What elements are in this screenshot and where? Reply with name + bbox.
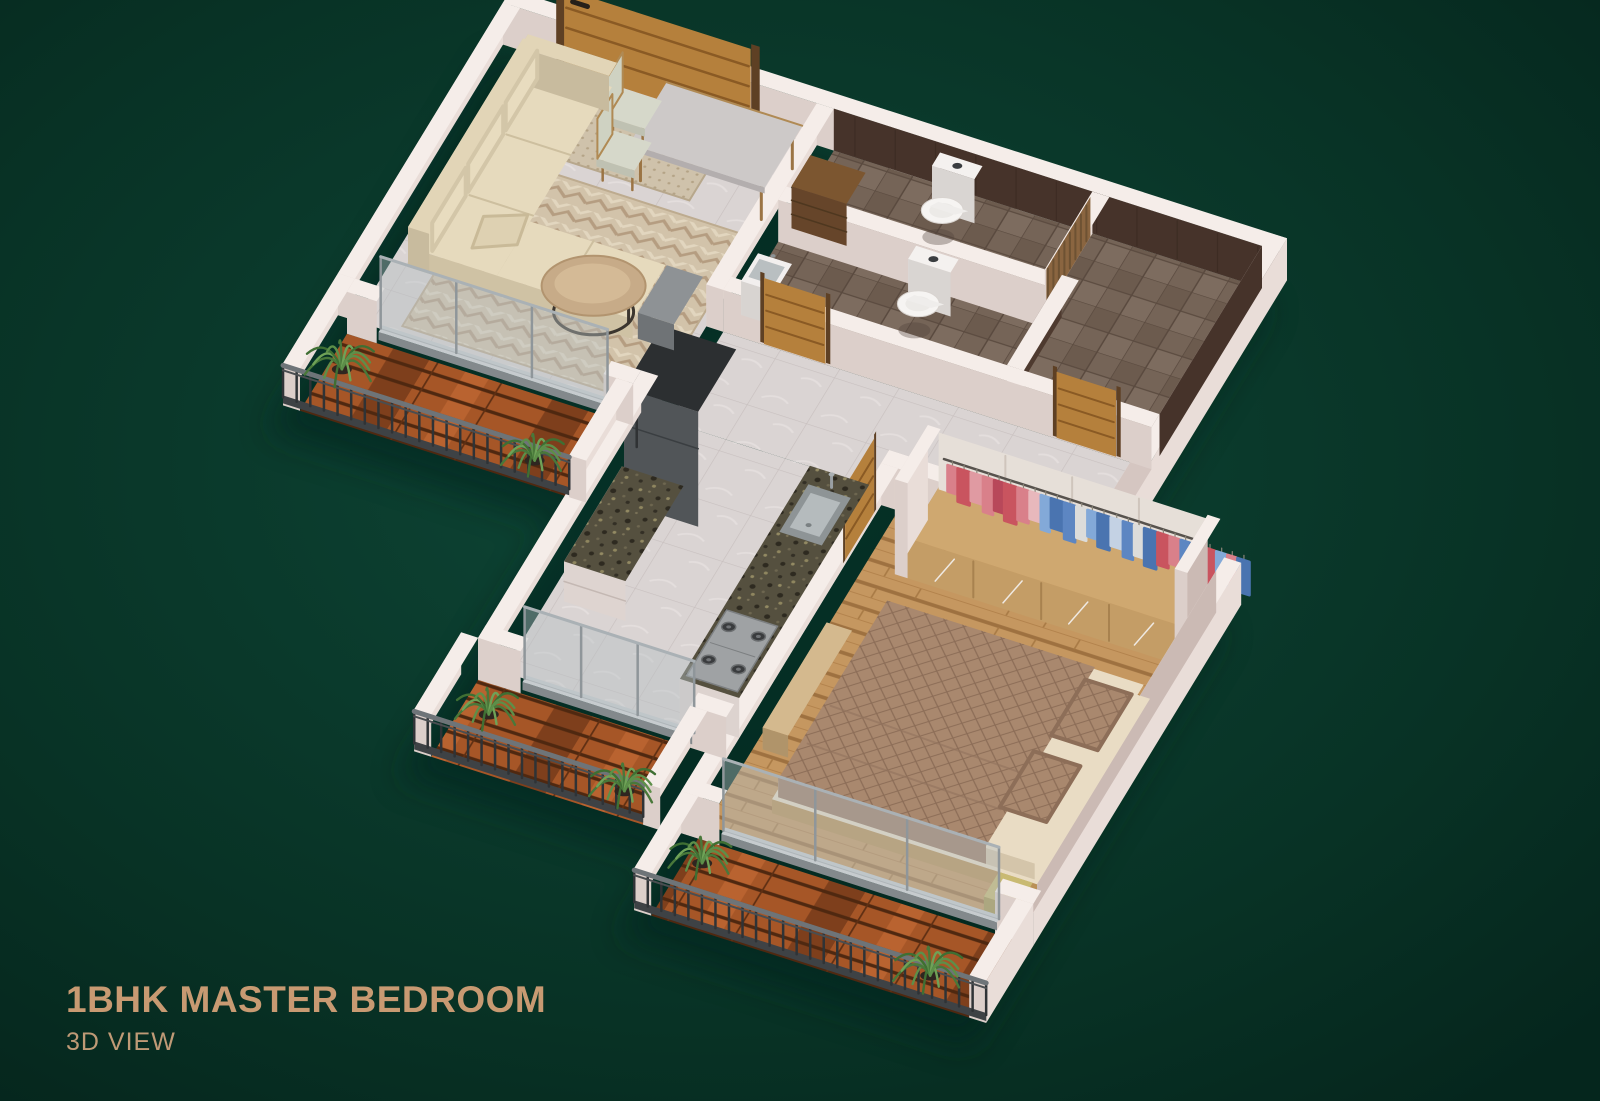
- floor-plan-3d-view: [0, 0, 1600, 1101]
- caption-block: 1BHK MASTER BEDROOM 3D VIEW: [66, 980, 546, 1057]
- page-subtitle: 3D VIEW: [66, 1028, 546, 1057]
- page-title: 1BHK MASTER BEDROOM: [66, 980, 546, 1021]
- floor-plan-page: 1BHK MASTER BEDROOM 3D VIEW: [0, 0, 1600, 1101]
